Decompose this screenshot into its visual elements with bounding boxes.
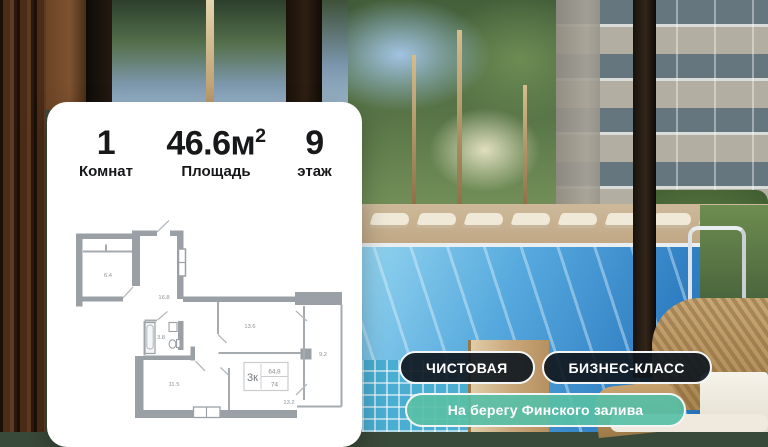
tree-trunk-reflection (206, 0, 214, 102)
room-label-right: 13.6 (244, 324, 255, 330)
room-label-bathroom: 3.8 (157, 335, 165, 341)
badge-finish: ЧИСТОВАЯ (399, 351, 535, 384)
tree-trunk (523, 85, 527, 215)
badge-location: На берегу Финского залива (405, 393, 686, 427)
tree-trunk (457, 30, 462, 220)
stat-floor: 9 этаж (267, 126, 362, 180)
sun-lounger (651, 213, 694, 228)
wood-panel (46, 0, 86, 110)
area-label: Площадь (165, 163, 267, 180)
stamp-area-bottom: 74 (271, 382, 279, 389)
room-label-balcony-left: 6.4 (104, 273, 113, 279)
stats-row: 1 Комнат 46.6м2 Площадь 9 этаж (47, 102, 362, 180)
stat-rooms: 1 Комнат (47, 126, 165, 180)
plan-walls (76, 231, 342, 419)
window-frame-pillar (286, 0, 322, 110)
rooms-value: 1 (47, 126, 165, 162)
wood-slat-wall (0, 0, 46, 432)
floor-plan: 6.4 16.8 3.8 11.5 13.6 9.2 13.2 3к 64,8 … (60, 218, 352, 430)
window-reflection (322, 0, 348, 110)
badge-row-bottom: На берегу Финского залива (405, 393, 686, 427)
plan-thin-walls (83, 245, 342, 411)
sun-lounger (463, 213, 506, 228)
badge-class: БИЗНЕС-КЛАСС (542, 351, 712, 384)
promo-banner: { "card": { "stats": [ { "num": "1", "su… (0, 0, 768, 432)
room-label-hall: 13.2 (283, 400, 294, 406)
stat-area: 46.6м2 Площадь (165, 126, 267, 180)
room-label-balcony-right: 9.2 (319, 352, 327, 358)
sun-lounger (557, 213, 600, 228)
area-value: 46.6м2 (165, 126, 267, 162)
apartment-info-card: 1 Комнат 46.6м2 Площадь 9 этаж (47, 102, 362, 447)
room-label-kitchen-living: 16.8 (158, 295, 169, 301)
balcony-railings (602, 0, 768, 222)
stamp-area-top: 64,8 (268, 369, 281, 376)
sun-lounger (510, 213, 553, 228)
badge-row-top: ЧИСТОВАЯ БИЗНЕС-КЛАСС (399, 351, 712, 384)
floor-value: 9 (267, 126, 362, 162)
floor-label: этаж (267, 163, 362, 180)
window-reflection (112, 0, 286, 110)
window-frame-bar (633, 0, 656, 378)
tree-trunk (412, 55, 416, 215)
stamp-room-code: 3к (247, 372, 258, 384)
sun-lounger (369, 213, 412, 228)
plan-stamp: 3к 64,8 74 (244, 363, 288, 391)
sun-lounger (416, 213, 459, 228)
rooms-label: Комнат (47, 163, 165, 180)
area-superscript: 2 (255, 125, 265, 147)
window-frame (86, 0, 112, 110)
building-column (556, 0, 600, 222)
area-number: 46.6м (166, 124, 255, 162)
room-label-bottom-left: 11.5 (169, 382, 180, 388)
